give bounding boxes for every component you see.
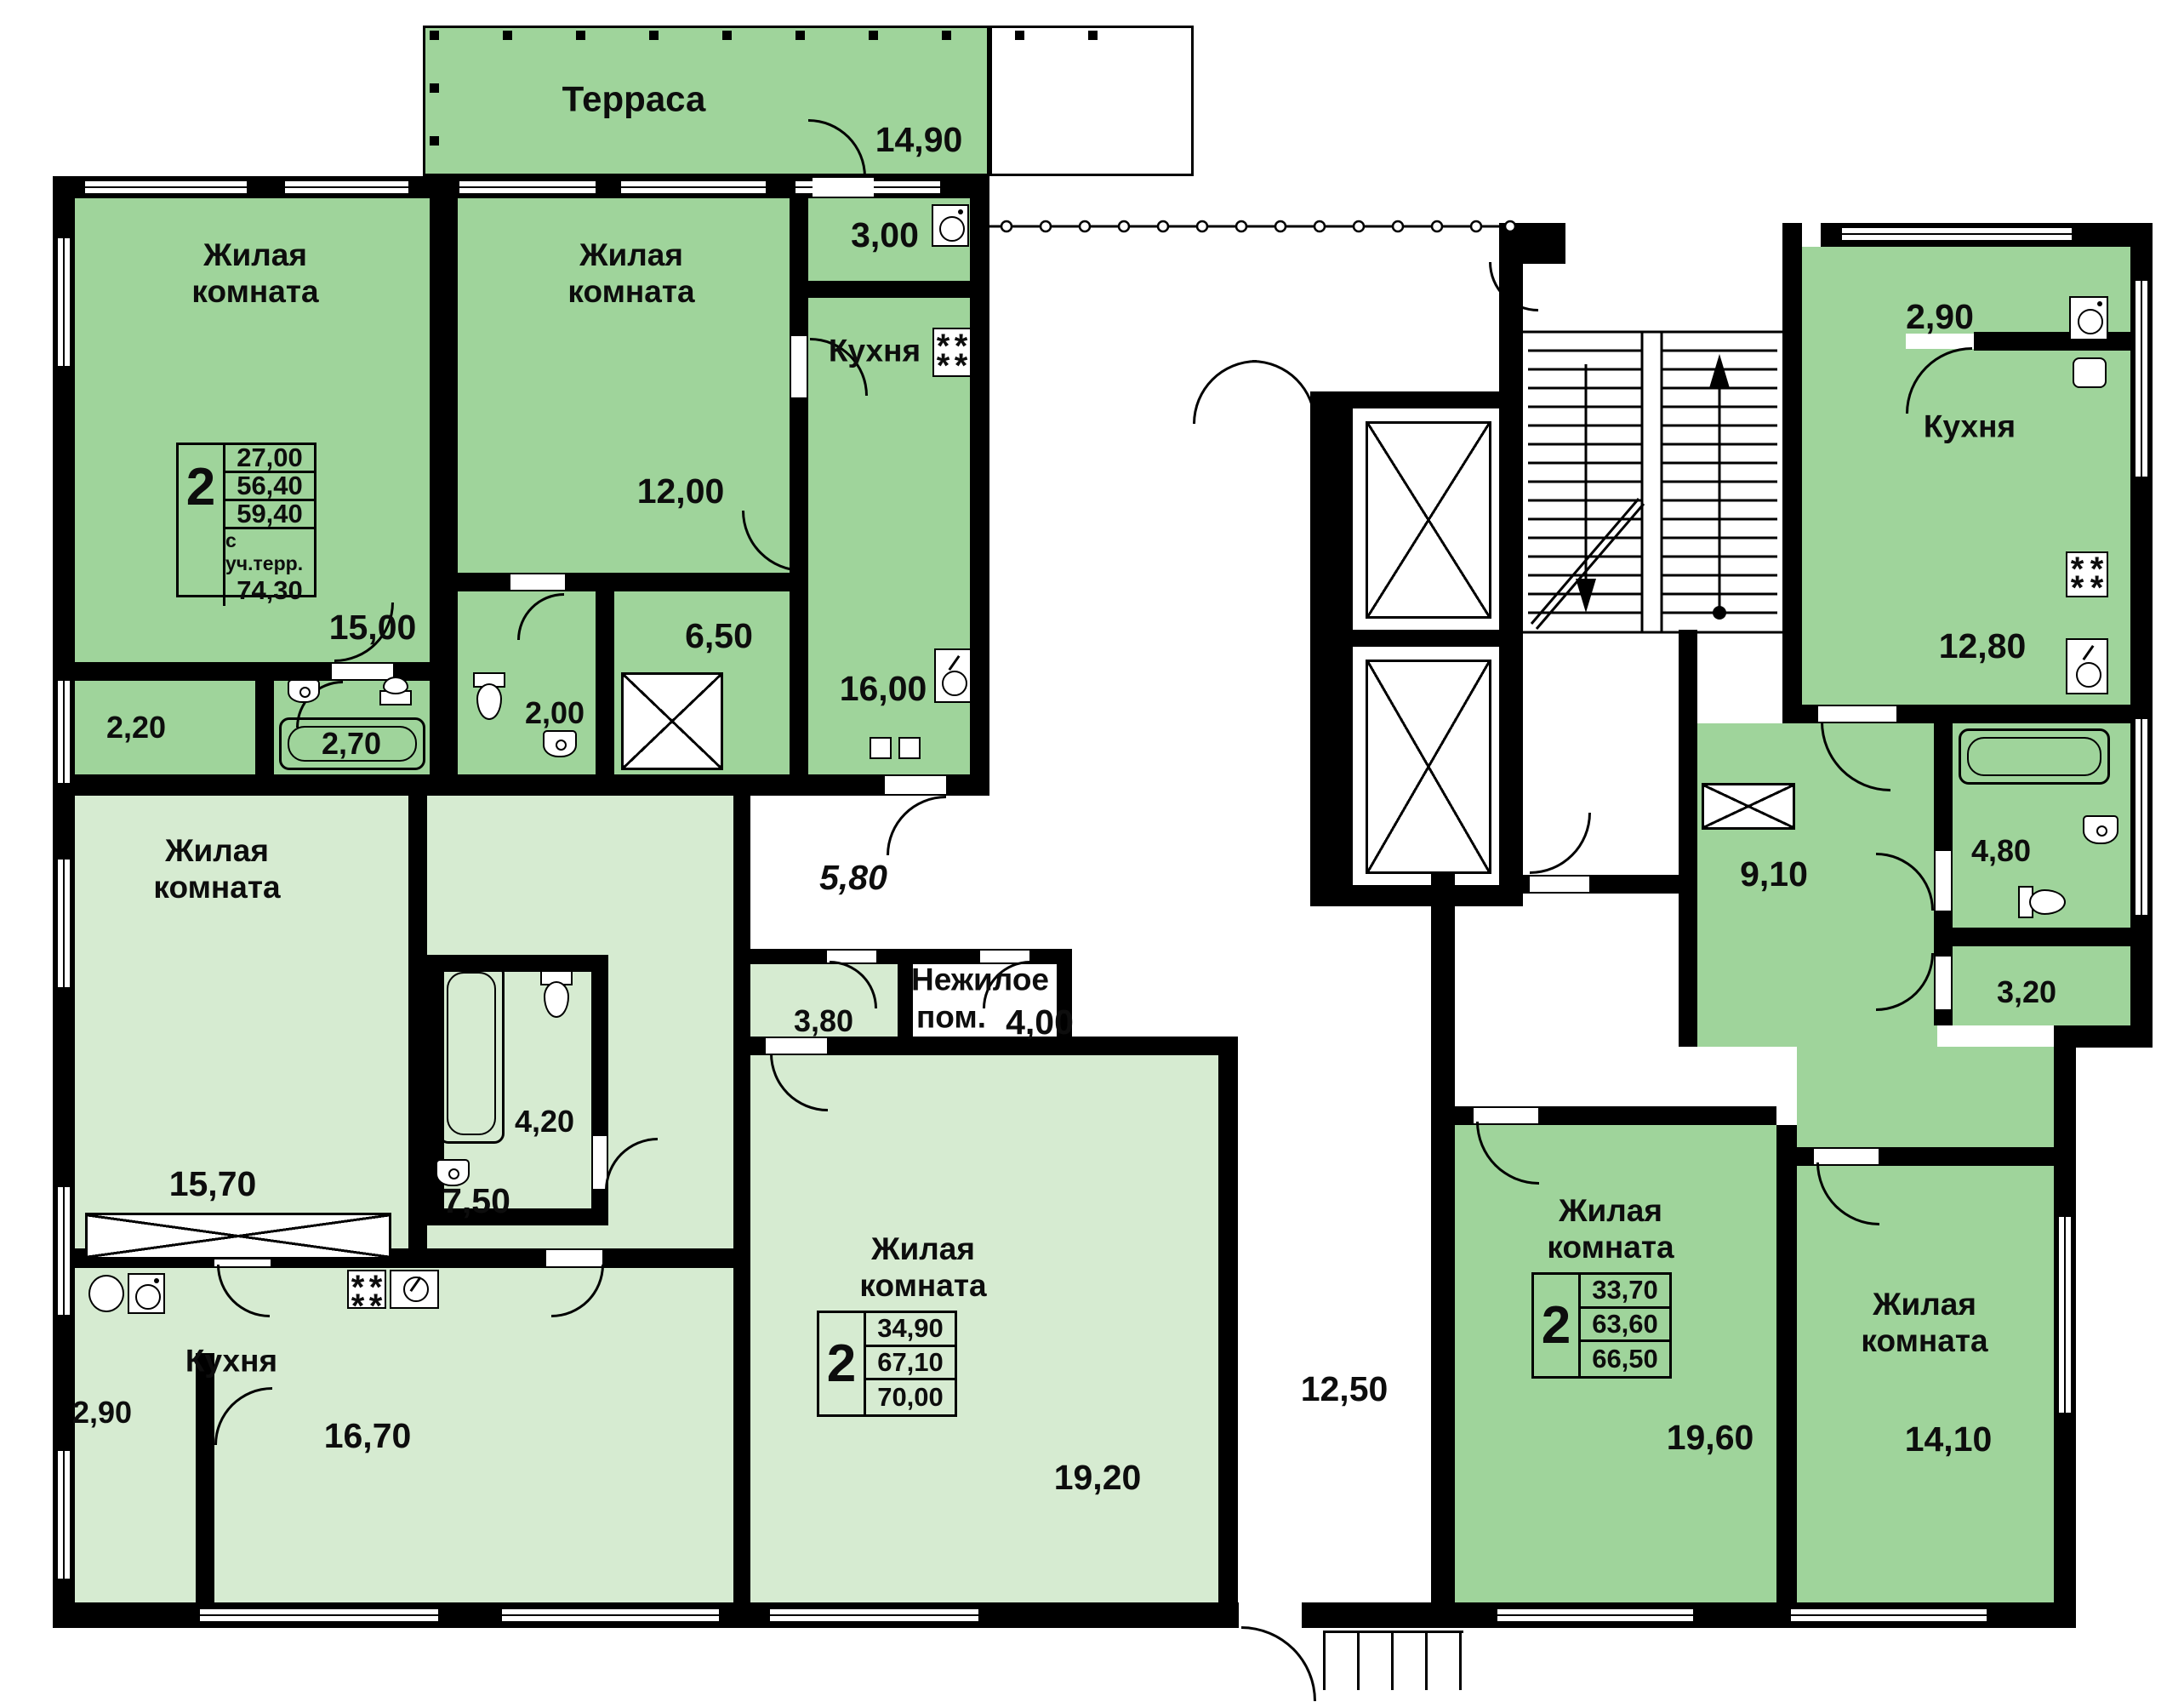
door-arc (1252, 360, 1316, 424)
stove-icon: **** (2066, 551, 2108, 597)
window (1842, 226, 2072, 242)
door-gap (791, 336, 807, 397)
apartment-info-table: 2 33,70 63,60 66,50 (1531, 1272, 1672, 1379)
door-arc (1489, 262, 1538, 311)
wall-elevator-right (1502, 391, 1523, 906)
wall-a1-rooms-divider (430, 198, 458, 573)
room-label: Жилая комната (821, 1231, 1025, 1305)
wall-a1-bath-wc (430, 573, 458, 774)
washing-machine-icon (932, 204, 969, 247)
room-area: 9,10 (1740, 854, 1808, 895)
wall-elevator-slab1 (1331, 391, 1523, 408)
window (56, 681, 71, 783)
wardrobe-icon (621, 672, 723, 770)
window (200, 1608, 438, 1623)
room-area: 4,20 (515, 1104, 574, 1139)
area-value: 56,40 (225, 473, 314, 501)
wall-a3-rooms-divider (1776, 1125, 1797, 1602)
wall-stairwell-right (1782, 223, 1802, 723)
wall-a3-bath-wc (1953, 928, 2130, 946)
door-gap (1936, 851, 1951, 911)
apartment-info-table: 2 34,90 67,10 70,00 (817, 1311, 957, 1417)
door-gap (593, 1136, 607, 1189)
room-area: 7,50 (442, 1181, 510, 1222)
wall-corr1250-left (1218, 1037, 1238, 1602)
stairs-icon (1523, 330, 1782, 634)
terrace-label: Терраса (562, 79, 706, 121)
room-area: 12,80 (1939, 626, 2027, 667)
window (2134, 281, 2149, 477)
room-label: Кухня (185, 1344, 277, 1380)
wardrobe-icon (85, 1213, 391, 1259)
room-area: 6,50 (685, 616, 753, 657)
bathtub-icon (438, 963, 505, 1144)
door-gap (1530, 877, 1589, 892)
room-area: 2,00 (525, 695, 584, 731)
window (621, 180, 766, 195)
window (2134, 719, 2149, 915)
wall-a2-column (733, 774, 750, 1602)
area-value: 70,00 (866, 1380, 955, 1414)
room-area: 12,00 (637, 471, 725, 512)
stove-icon: **** (932, 328, 972, 377)
corridor-area: 12,50 (1301, 1369, 1389, 1410)
wall-a1-closet-bath (255, 681, 274, 774)
burner-icon (88, 1275, 124, 1312)
vent-box-icon (898, 737, 921, 759)
room-label: Жилая комната (1822, 1287, 2027, 1360)
elevator-icon (1366, 421, 1491, 619)
kitchen-sink-icon (390, 1270, 439, 1309)
rooms-count: 2 (819, 1313, 866, 1414)
window (459, 180, 596, 195)
area-value: 59,40 (225, 501, 314, 529)
stove-icon: **** (347, 1270, 386, 1309)
room-area: 15,70 (169, 1164, 257, 1205)
window (56, 238, 71, 366)
terrace-area: 14,90 (875, 120, 963, 161)
wall-elevator-left-outer (1310, 391, 1331, 906)
rooms-count: 2 (1534, 1275, 1581, 1376)
wall-elevator-slab2 (1331, 630, 1523, 647)
window (285, 180, 408, 195)
room-area: 2,90 (72, 1395, 132, 1431)
terrace-total: с уч.терр. 74,30 (225, 529, 314, 606)
window (2057, 1217, 2073, 1413)
room-living-14-10 (1797, 1166, 2055, 1602)
room-area: 4,80 (1971, 833, 2031, 869)
area-value: 33,70 (1581, 1275, 1669, 1309)
room-area: 19,60 (1667, 1418, 1754, 1459)
area-value: 74,30 (237, 575, 303, 606)
corridor-area: 5,80 (819, 858, 887, 899)
door-gap (766, 1038, 827, 1054)
terrace-note: с уч.терр. (225, 529, 314, 575)
entrance-steps (1323, 1631, 1463, 1690)
room-label: Жилая комната (533, 237, 729, 311)
terrace-posts-left (430, 31, 439, 171)
nonresidential-label: пом. (916, 1000, 986, 1037)
window (85, 180, 247, 195)
sink-icon (2083, 815, 2118, 844)
door-arc (887, 796, 946, 855)
wall-a1-kitchen-left (790, 198, 808, 774)
floor-plan: Терраса 14,90 (0, 0, 2184, 1702)
room-label: Жилая комната (119, 833, 315, 906)
wall-a1-wc-hall (596, 591, 614, 774)
wall-a1-entry-bottom (808, 281, 989, 298)
window (502, 1608, 719, 1623)
wall-a3-hall-left (1679, 630, 1697, 1047)
toilet-icon (538, 970, 575, 1018)
room-area: 14,10 (1905, 1419, 1993, 1460)
wall-a2-entry (196, 1353, 214, 1602)
room-area: 2,90 (1906, 297, 1974, 338)
area-value: 66,50 (1581, 1342, 1669, 1376)
area-value: 67,10 (866, 1347, 955, 1381)
elevator-icon (1366, 660, 1491, 874)
wall-gallery-block (1519, 223, 1565, 264)
window (1497, 1608, 1693, 1623)
terrace-posts-top (430, 31, 1161, 40)
room-area: 15,00 (329, 608, 417, 648)
kitchen-sink-icon (934, 648, 972, 703)
washing-machine-icon (2069, 296, 2108, 340)
area-value: 34,90 (866, 1313, 955, 1347)
kitchen-sink-icon (2066, 638, 2108, 694)
wall-corr1250-right (1431, 794, 1455, 1602)
wall-elevator-slab3 (1331, 885, 1523, 906)
boiler-icon (2073, 357, 2107, 388)
door-arc (1241, 1626, 1316, 1701)
window (56, 1451, 71, 1579)
door-gap (885, 776, 946, 794)
wall-a1-bottom (53, 774, 989, 796)
door-gap (510, 574, 565, 590)
toilet-icon (2018, 883, 2066, 921)
window (56, 860, 71, 987)
table-empty-cell (179, 529, 225, 606)
bathtub-icon (1959, 728, 2110, 785)
room-label: Жилая комната (157, 237, 353, 311)
window (1791, 1608, 1987, 1623)
room-label: Жилая комната (1508, 1193, 1713, 1266)
room-area: 16,00 (840, 669, 927, 710)
room-area: 16,70 (324, 1416, 412, 1457)
toilet-icon (377, 677, 414, 705)
washing-machine-icon (128, 1273, 165, 1314)
door-gap (1936, 957, 1951, 1009)
sink-icon (288, 679, 320, 703)
room-area: 3,00 (851, 215, 919, 256)
nonresidential-label: Нежилое (911, 962, 1049, 999)
room-area: 19,20 (1054, 1458, 1142, 1499)
room-area: 3,20 (1997, 974, 2056, 1010)
wall-a1-right (970, 176, 989, 796)
room-label: Кухня (829, 334, 921, 370)
wall-right-step (2054, 1025, 2153, 1048)
sink-icon (543, 730, 577, 757)
nonresidential-area: 4,00 (1006, 1002, 1074, 1043)
room-area: 2,70 (322, 726, 381, 762)
area-value: 27,00 (225, 445, 314, 473)
apartment-info-table: 2 27,00 56,40 59,40 с уч.терр. 74,30 (176, 443, 316, 597)
area-value: 63,60 (1581, 1309, 1669, 1343)
room-area: 2,20 (106, 710, 166, 745)
door-arc (1530, 813, 1591, 874)
room-area: 3,80 (794, 1003, 853, 1039)
terrace-open-part (989, 26, 1194, 176)
window (56, 1187, 71, 1315)
wall-elevator-left (1331, 391, 1353, 906)
vent-box-icon (870, 737, 892, 759)
room-label: Кухня (1924, 409, 2016, 446)
wardrobe-icon (1702, 783, 1795, 830)
gallery-railing (989, 218, 1521, 235)
wall-a1-hall-top (430, 573, 808, 591)
wall-a2-room1-right (408, 794, 427, 1268)
toilet-icon (470, 672, 508, 720)
rooms-count: 2 (179, 445, 225, 529)
door-gap (1818, 706, 1896, 722)
door-arc (1193, 360, 1257, 424)
window (770, 1608, 978, 1623)
door-gap (813, 178, 874, 197)
